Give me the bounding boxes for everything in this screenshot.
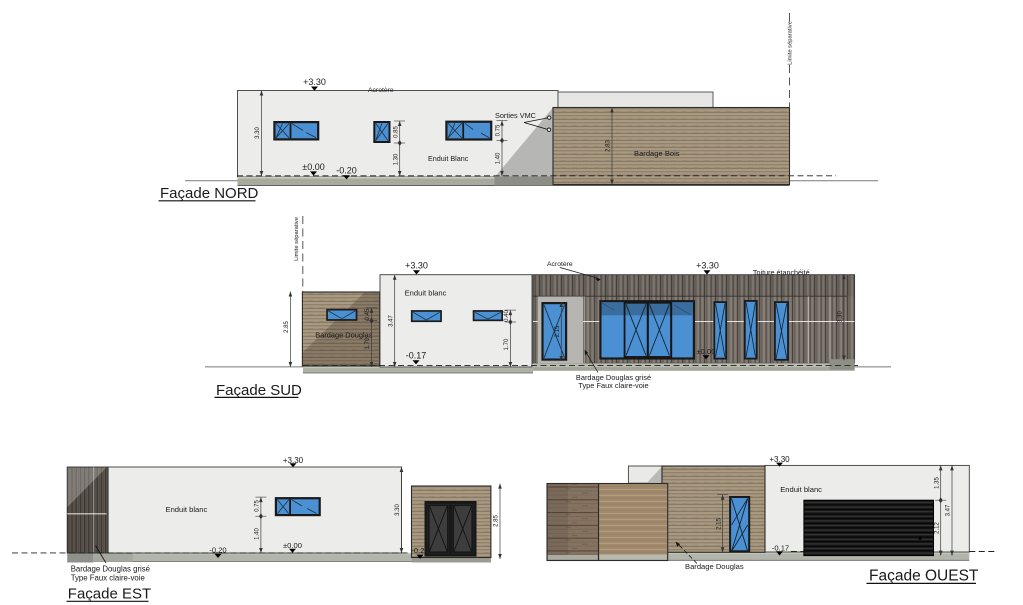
svg-text:Limite séparative: Limite séparative — [294, 217, 300, 261]
svg-text:0.75: 0.75 — [496, 124, 502, 136]
svg-text:-0.20: -0.20 — [336, 166, 357, 176]
svg-text:1.40: 1.40 — [255, 528, 261, 540]
svg-text:2.12: 2.12 — [934, 522, 940, 534]
svg-text:Bardage Douglas: Bardage Douglas — [315, 331, 372, 340]
svg-text:2.15: 2.15 — [716, 518, 722, 530]
svg-text:Type Faux claire-voie: Type Faux claire-voie — [71, 573, 145, 582]
svg-text:Enduit blanc: Enduit blanc — [166, 505, 208, 514]
svg-text:Bardage Bois: Bardage Bois — [634, 149, 680, 158]
svg-text:±0.00: ±0.00 — [302, 162, 324, 172]
svg-text:Enduit blanc: Enduit blanc — [405, 289, 447, 298]
svg-text:2.85: 2.85 — [284, 321, 290, 333]
svg-text:Façade EST: Façade EST — [68, 586, 151, 603]
svg-text:1.30: 1.30 — [393, 153, 399, 165]
svg-text:0.75: 0.75 — [255, 500, 261, 512]
svg-text:-0.20: -0.20 — [209, 546, 226, 555]
svg-text:3.30: 3.30 — [395, 504, 401, 516]
svg-text:Limite séparative: Limite séparative — [788, 21, 794, 65]
svg-text:0.45: 0.45 — [365, 308, 371, 320]
svg-text:Acrotère: Acrotère — [547, 261, 573, 268]
svg-text:+3.30: +3.30 — [405, 260, 428, 270]
svg-text:±0.00: ±0.00 — [283, 541, 302, 550]
svg-text:+3.30: +3.30 — [303, 77, 326, 87]
svg-text:1.70: 1.70 — [504, 338, 510, 350]
svg-text:Bardage Douglas grisé: Bardage Douglas grisé — [71, 565, 150, 574]
svg-text:Type Faux claire-voie: Type Faux claire-voie — [578, 381, 648, 390]
svg-text:Toiture étanchéité: Toiture étanchéité — [753, 268, 810, 277]
svg-text:3.30: 3.30 — [255, 127, 261, 139]
svg-text:+3.30: +3.30 — [696, 260, 719, 270]
svg-text:3.30: 3.30 — [838, 311, 844, 323]
svg-text:Façade SUD: Façade SUD — [216, 382, 302, 399]
svg-text:Sorties VMC: Sorties VMC — [495, 111, 536, 120]
svg-text:3.47: 3.47 — [946, 504, 952, 516]
svg-text:3.47: 3.47 — [388, 315, 394, 327]
svg-text:±0.00: ±0.00 — [697, 347, 716, 356]
svg-text:Bardage Douglas: Bardage Douglas — [685, 562, 744, 571]
svg-text:Enduit blanc: Enduit blanc — [780, 485, 822, 494]
svg-text:Façade NORD: Façade NORD — [160, 185, 259, 202]
svg-text:-0.17: -0.17 — [406, 351, 427, 361]
svg-text:2.85: 2.85 — [494, 515, 500, 527]
svg-text:Façade OUEST: Façade OUEST — [869, 568, 979, 585]
svg-text:Acrotère: Acrotère — [368, 87, 394, 94]
svg-text:0.85: 0.85 — [393, 126, 399, 138]
svg-text:1.40: 1.40 — [496, 152, 502, 164]
svg-text:2.83: 2.83 — [606, 140, 612, 152]
svg-text:0.40: 0.40 — [504, 310, 510, 322]
svg-text:1.35: 1.35 — [934, 477, 940, 489]
svg-text:2.15: 2.15 — [555, 325, 561, 337]
svg-text:Enduit Blanc: Enduit Blanc — [428, 154, 469, 163]
svg-text:1.70: 1.70 — [365, 337, 371, 349]
